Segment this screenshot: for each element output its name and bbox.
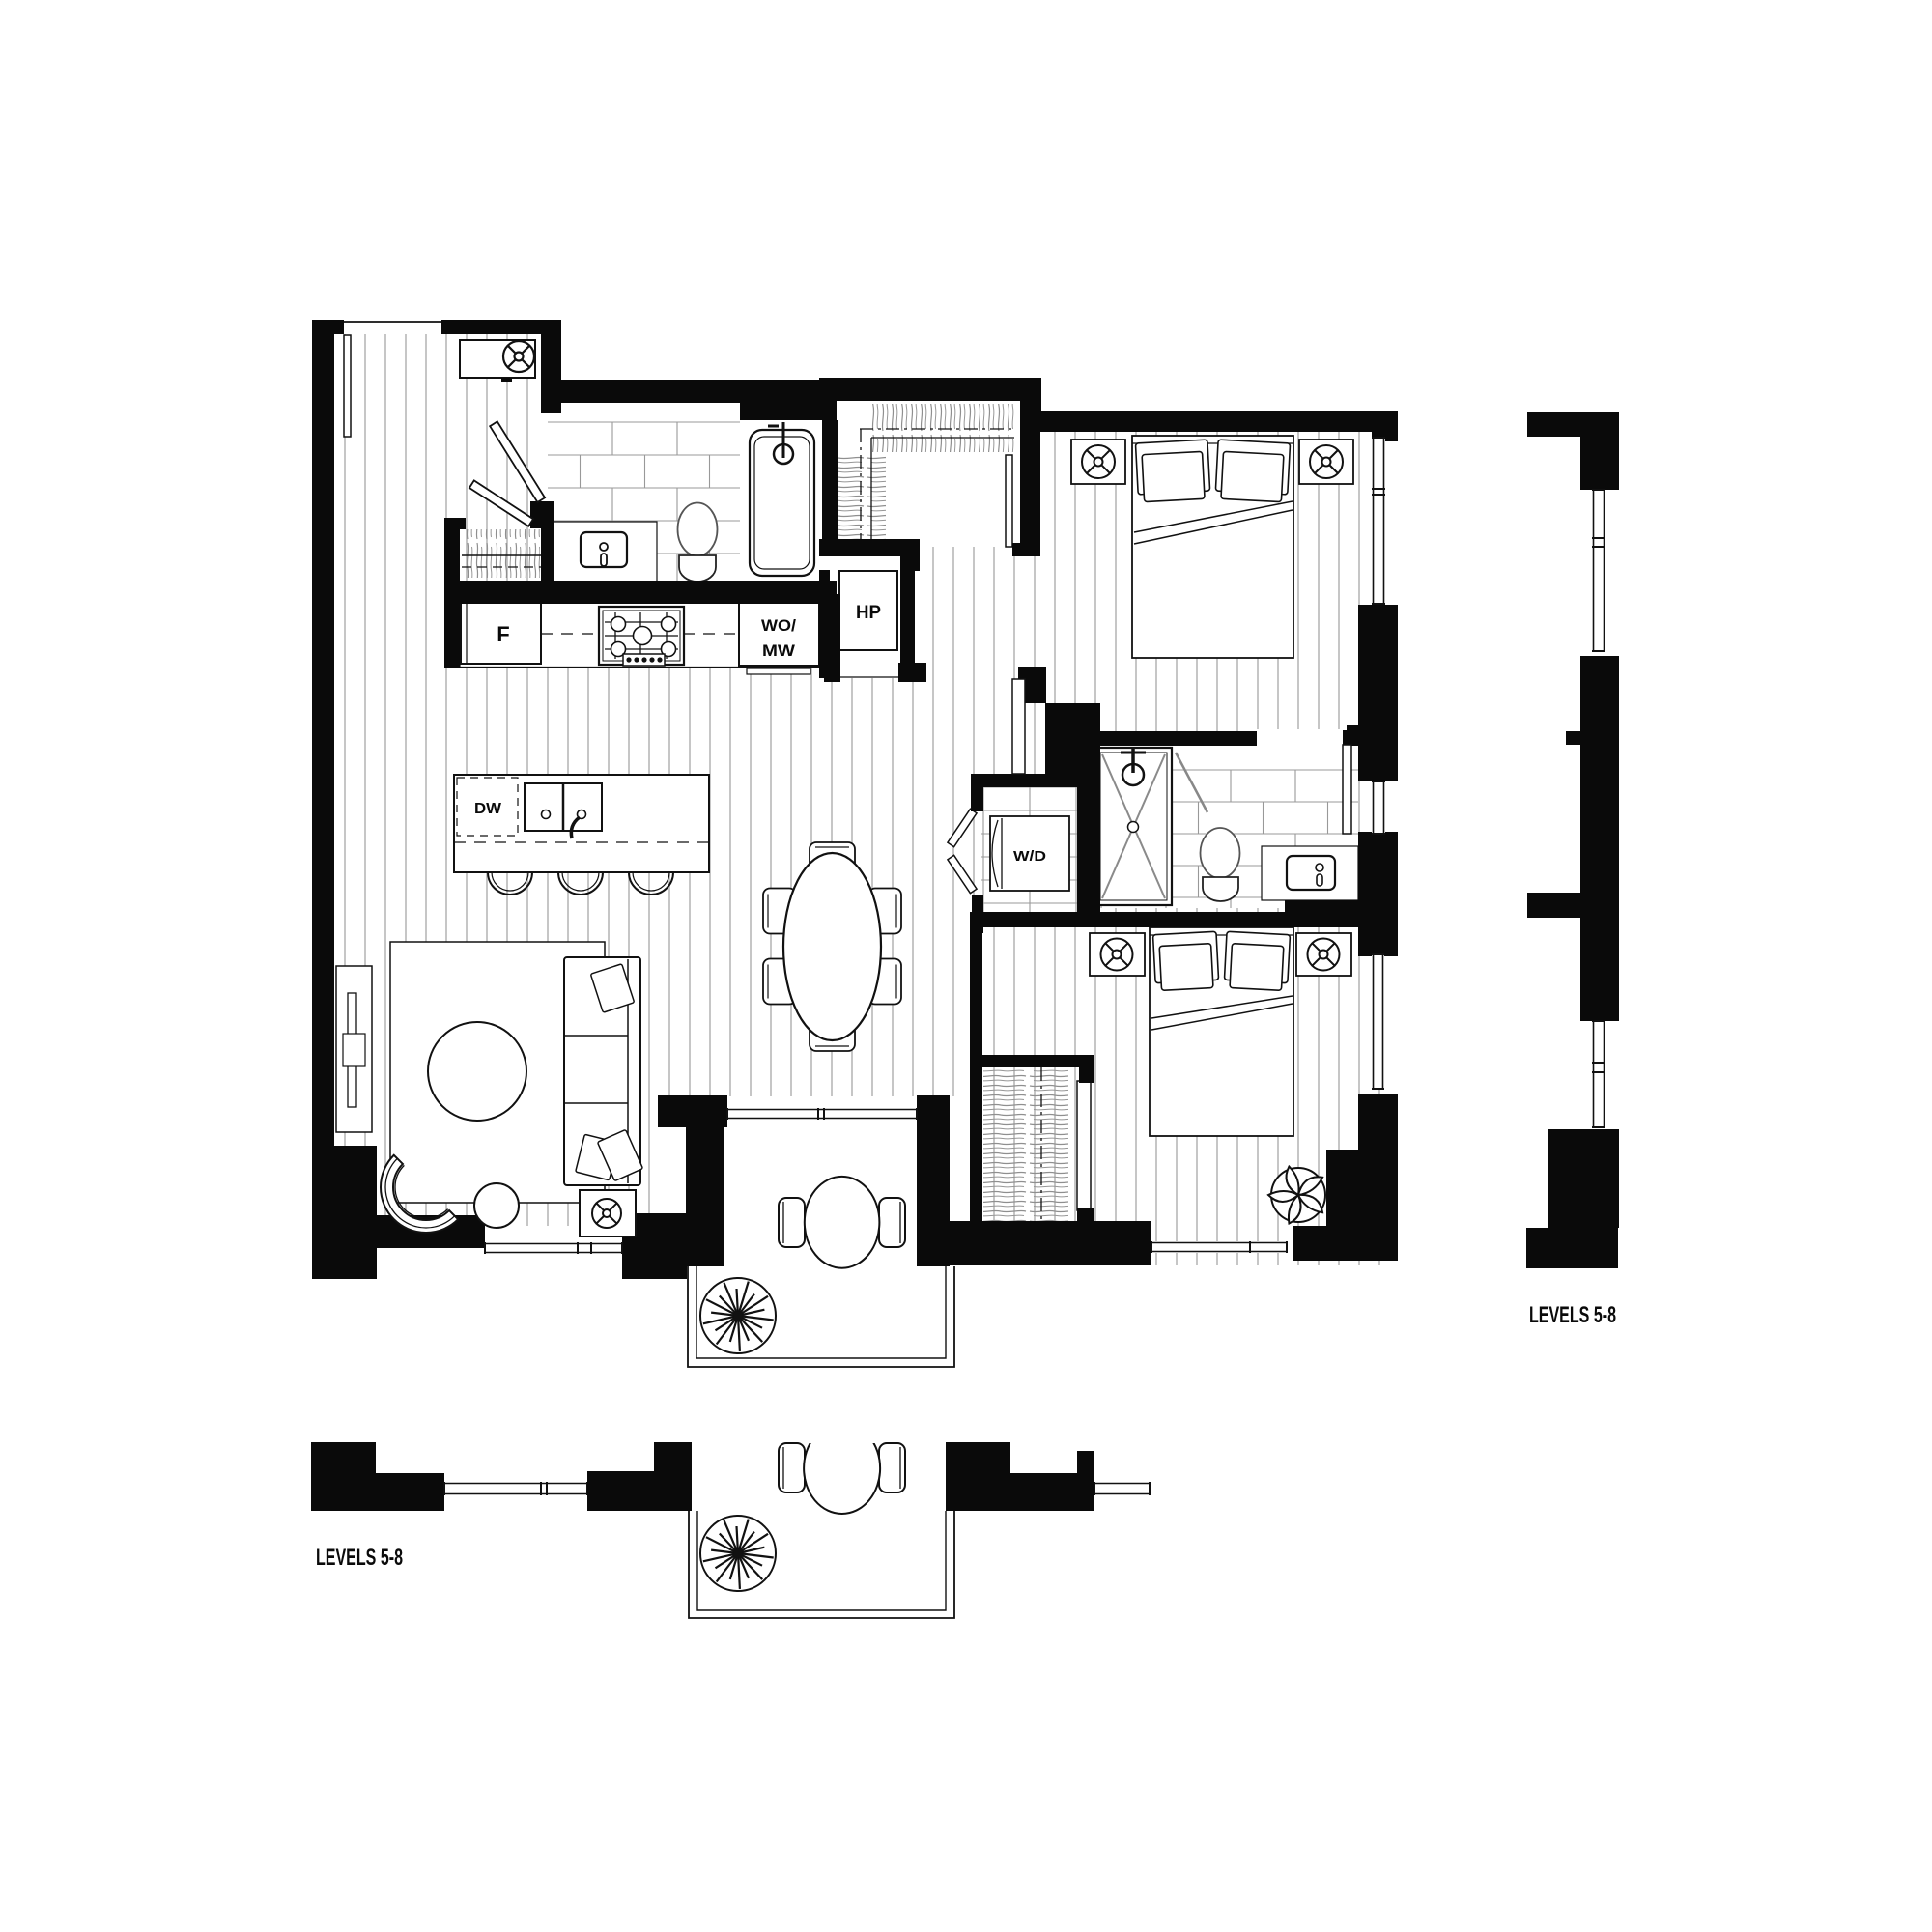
svg-text:WO/: WO/ — [761, 616, 796, 635]
svg-text:F: F — [497, 622, 509, 646]
svg-text:DW: DW — [474, 801, 502, 817]
svg-text:LEVELS 5-8: LEVELS 5-8 — [316, 1545, 403, 1571]
svg-text:MW: MW — [762, 641, 796, 660]
svg-text:HP: HP — [856, 603, 881, 623]
svg-text:LEVELS 5-8: LEVELS 5-8 — [1529, 1302, 1616, 1328]
svg-text:W/D: W/D — [1013, 848, 1046, 865]
